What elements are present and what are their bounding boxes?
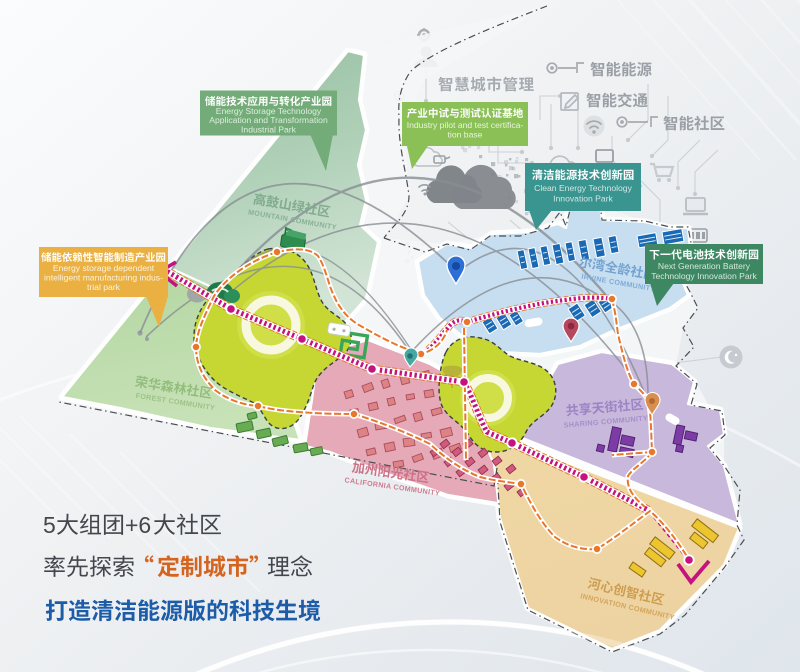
svg-text:Technology Innovation Park: Technology Innovation Park <box>651 271 757 281</box>
svg-text:Energy storage dependent: Energy storage dependent <box>53 263 155 273</box>
svg-text:Next Generation Battery: Next Generation Battery <box>658 261 751 271</box>
svg-text:Industry pilot and test certif: Industry pilot and test certifica- <box>407 120 524 130</box>
svg-text:trial park: trial park <box>87 282 121 292</box>
svg-text:intelligent manufacturing indu: intelligent manufacturing indus- <box>44 273 163 283</box>
svg-text:Innovation Park: Innovation Park <box>553 194 613 204</box>
svg-text:Clean Energy Technology: Clean Energy Technology <box>534 183 632 193</box>
svg-text:5: 5 <box>43 512 56 538</box>
svg-text:tion base: tion base <box>448 130 483 140</box>
svg-text:+6: +6 <box>125 512 151 538</box>
svg-text:Industrial Park: Industrial Park <box>241 124 297 134</box>
